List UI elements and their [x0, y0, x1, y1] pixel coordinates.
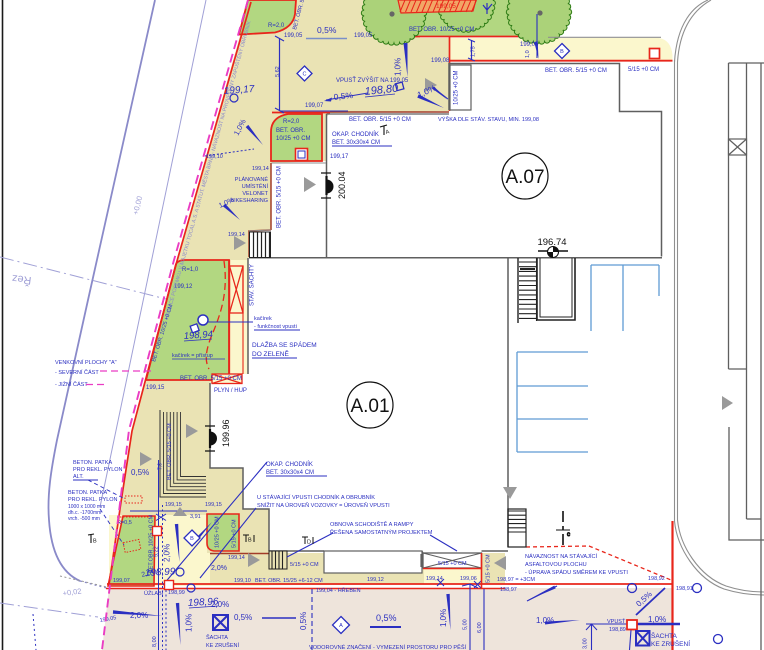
svg-text:- SEVERNÍ ČÁST: - SEVERNÍ ČÁST: [55, 369, 99, 376]
svg-text:PRO REKL. PYLON: PRO REKL. PYLON: [73, 467, 123, 473]
svg-text:kačírek = přístup: kačírek = přístup: [172, 353, 213, 359]
svg-text:5/15 +0 CM: 5/15 +0 CM: [232, 519, 238, 548]
svg-text:D: D: [307, 540, 311, 546]
svg-text:U STÁVAJÍCÍ VPUSTI CHODNÍK A O: U STÁVAJÍCÍ VPUSTI CHODNÍK A OBRUBNÍK: [257, 494, 375, 501]
svg-text:Řez: Řez: [11, 272, 32, 287]
svg-text:199,14: 199,14: [426, 576, 443, 582]
svg-text:198,99: 198,99: [145, 566, 177, 579]
svg-text:199,07: 199,07: [305, 103, 324, 109]
svg-text:BET. OBR. 5/15 +0 CM: BET. OBR. 5/15 +0 CM: [167, 423, 173, 480]
svg-text:R=0,5: R=0,5: [117, 520, 132, 526]
svg-text:BIKESHARING: BIKESHARING: [230, 198, 268, 204]
svg-text:BETON. PATKA: BETON. PATKA: [73, 460, 112, 466]
svg-text:DO ZELENĚ: DO ZELENĚ: [252, 349, 290, 358]
svg-text:198,92: 198,92: [648, 576, 665, 582]
svg-text:1,0%: 1,0%: [536, 616, 554, 625]
svg-text:C: C: [303, 72, 307, 78]
svg-text:200.04: 200.04: [337, 171, 347, 199]
svg-text:BETON. PATKA: BETON. PATKA: [68, 490, 107, 496]
svg-text:ASFALTOVOU PLOCHU: ASFALTOVOU PLOCHU: [525, 562, 587, 568]
svg-text:B: B: [190, 536, 194, 542]
svg-text:1,0%: 1,0%: [185, 614, 194, 632]
svg-text:199,14: 199,14: [228, 232, 245, 238]
svg-text:BET. OBR. 10/25 +0 CM: BET. OBR. 10/25 +0 CM: [409, 27, 474, 33]
svg-text:BET. 30x30x4 CM: BET. 30x30x4 CM: [332, 140, 380, 146]
svg-text:ŠACHTA: ŠACHTA: [206, 634, 228, 641]
svg-text:VENKOVNÍ PLOCHY "A": VENKOVNÍ PLOCHY "A": [55, 359, 117, 366]
svg-text:199,07: 199,07: [113, 578, 130, 584]
svg-text:199,05: 199,05: [436, 3, 456, 10]
svg-text:B: B: [93, 539, 97, 545]
svg-text:BET. OBR. 5/15 +0 CM: BET. OBR. 5/15 +0 CM: [349, 117, 411, 123]
svg-text:R=1,0: R=1,0: [182, 267, 199, 273]
svg-text:B: B: [248, 538, 252, 544]
svg-text:0,5%: 0,5%: [234, 613, 252, 622]
svg-text:199.96: 199.96: [221, 419, 231, 447]
svg-text:- funkčnost vpusti: - funkčnost vpusti: [254, 324, 297, 330]
svg-text:199,12: 199,12: [367, 577, 384, 583]
svg-text:5,62: 5,62: [275, 66, 281, 77]
svg-text:1,0%: 1,0%: [439, 609, 448, 627]
svg-text:198,97: 198,97: [500, 587, 517, 593]
svg-text:OBNOVA SCHODIŠTĚ A RAMPY: OBNOVA SCHODIŠTĚ A RAMPY: [330, 520, 414, 528]
svg-text:5/15 +0 CM: 5/15 +0 CM: [438, 561, 467, 567]
svg-text:ŘEŠENA SAMOSTATNÝM PROJEKTEM: ŘEŠENA SAMOSTATNÝM PROJEKTEM: [330, 528, 433, 536]
svg-text:BET. OBR. 5/15 +0 CM: BET. OBR. 5/15 +0 CM: [180, 376, 242, 382]
svg-text:0,5%: 0,5%: [131, 468, 149, 477]
svg-text:1,0: 1,0: [525, 50, 531, 58]
svg-text:0,5%: 0,5%: [299, 612, 308, 630]
svg-text:VELONET: VELONET: [242, 191, 268, 197]
svg-text:199,15: 199,15: [165, 502, 182, 508]
svg-text:ÚŽLABÍ: ÚŽLABÍ: [144, 589, 164, 597]
svg-text:198,89: 198,89: [609, 627, 626, 633]
svg-text:2,0%: 2,0%: [163, 544, 172, 562]
svg-text:10/25 +0 CM: 10/25 +0 CM: [454, 70, 460, 105]
svg-text:ALT.: ALT.: [73, 474, 84, 480]
svg-text:198,97 = +3CM: 198,97 = +3CM: [497, 577, 535, 583]
svg-text:B: B: [560, 49, 564, 55]
svg-text:199,05: 199,05: [354, 33, 373, 39]
svg-text:0,5%: 0,5%: [376, 613, 397, 623]
svg-text:c: c: [567, 532, 570, 538]
svg-text:3,00: 3,00: [583, 638, 589, 649]
svg-text:199,10: 199,10: [234, 578, 251, 584]
svg-text:PLÁNOVANÉ: PLÁNOVANÉ: [235, 176, 269, 183]
svg-text:199,08: 199,08: [431, 58, 450, 64]
svg-text:BET. 30x30x4 CM: BET. 30x30x4 CM: [266, 470, 314, 476]
svg-text:5/15 +0 CM: 5/15 +0 CM: [628, 67, 659, 73]
svg-text:PRO REKL. PYLON: PRO REKL. PYLON: [68, 497, 118, 503]
svg-text:10/25 +0 CM: 10/25 +0 CM: [215, 516, 221, 548]
svg-text:5,00: 5,00: [463, 619, 469, 630]
svg-text:198,99: 198,99: [168, 590, 185, 596]
svg-text:SNÍŽIT NA ÚROVEŇ VOZOVKY = ÚRO: SNÍŽIT NA ÚROVEŇ VOZOVKY = ÚROVEŇ VPUSTI: [257, 501, 390, 509]
svg-text:6,00: 6,00: [477, 622, 483, 633]
svg-text:KE ZRUŠENÍ: KE ZRUŠENÍ: [206, 642, 239, 649]
svg-text:A: A: [339, 623, 343, 629]
svg-text:A.07: A.07: [505, 167, 544, 188]
svg-text:R=2,0: R=2,0: [268, 23, 285, 29]
svg-text:2,0%: 2,0%: [211, 565, 227, 572]
svg-text:1,75: 1,75: [471, 46, 477, 57]
svg-text:A.01: A.01: [350, 396, 389, 417]
svg-text:R=2,0: R=2,0: [283, 119, 300, 125]
svg-text:199,15: 199,15: [205, 502, 222, 508]
svg-text:0,5%: 0,5%: [333, 90, 354, 102]
svg-text:BET. OBR. 5/15 +0 CM: BET. OBR. 5/15 +0 CM: [277, 166, 283, 228]
svg-text:BET. OBR.: BET. OBR.: [276, 128, 305, 134]
svg-text:1,0%: 1,0%: [394, 58, 403, 76]
svg-text:199,05: 199,05: [284, 33, 303, 39]
svg-text:- JIŽNÍ ČÁST: - JIŽNÍ ČÁST: [55, 380, 88, 388]
svg-text:OKAP. CHODNÍK: OKAP. CHODNÍK: [332, 131, 379, 138]
svg-text:8,00: 8,00: [152, 636, 158, 647]
svg-text:5/15 +0 CM: 5/15 +0 CM: [290, 562, 319, 568]
svg-text:199,06: 199,06: [460, 576, 477, 582]
svg-text:PLYN / HUP: PLYN / HUP: [214, 388, 247, 394]
svg-text:VPUSŤ ZVÝŠIT NA 199,05: VPUSŤ ZVÝŠIT NA 199,05: [336, 76, 409, 84]
svg-text:DLAŽBA SE SPÁDEM: DLAŽBA SE SPÁDEM: [252, 340, 317, 349]
svg-text:10/25 +0 CM: 10/25 +0 CM: [276, 136, 311, 142]
svg-text:BET. OBR. 15/25 +6-12 CM: BET. OBR. 15/25 +6-12 CM: [255, 578, 323, 584]
svg-text:1,0%: 1,0%: [648, 615, 666, 624]
svg-text:5/15 +0 CM: 5/15 +0 CM: [486, 554, 492, 583]
svg-text:5,22: 5,22: [154, 546, 160, 557]
svg-text:ŠACHTA: ŠACHTA: [651, 631, 678, 640]
svg-text:199,04 - HŘEBEN: 199,04 - HŘEBEN: [316, 586, 361, 594]
svg-text:199,17: 199,17: [330, 154, 349, 160]
svg-text:199,14: 199,14: [252, 166, 269, 172]
svg-text:VODOROVNÉ ZNAČENÍ - VYMEZENÍ P: VODOROVNÉ ZNAČENÍ - VYMEZENÍ PROSTORU PR…: [309, 643, 467, 650]
svg-text:vrch. -500 mm: vrch. -500 mm: [68, 516, 100, 522]
svg-text:199,05: 199,05: [520, 42, 539, 48]
svg-text:OKAP. CHODNÍK: OKAP. CHODNÍK: [266, 461, 313, 468]
svg-text:0,5%: 0,5%: [317, 25, 337, 35]
svg-text:- ÚPRAVA SPÁDU SMĚREM KE VPUST: - ÚPRAVA SPÁDU SMĚREM KE VPUSTI: [525, 568, 628, 576]
svg-text:199,15: 199,15: [146, 385, 165, 391]
svg-text:2,0%: 2,0%: [130, 611, 148, 620]
svg-text:198,91: 198,91: [676, 586, 693, 592]
svg-text:199,14: 199,14: [228, 555, 245, 561]
svg-text:VPUSŤ: VPUSŤ: [607, 617, 626, 625]
svg-text:NÁVAZNOST NA STÁVAJÍCÍ: NÁVAZNOST NA STÁVAJÍCÍ: [525, 553, 598, 560]
svg-text:UMÍSTĚNÍ: UMÍSTĚNÍ: [242, 182, 269, 190]
svg-text:196.74: 196.74: [537, 237, 566, 248]
svg-text:7,6: 7,6: [158, 463, 164, 470]
svg-text:KE ZRUŠENÍ: KE ZRUŠENÍ: [651, 639, 690, 648]
svg-text:BET. OBR. 5/15 +0 CM: BET. OBR. 5/15 +0 CM: [545, 68, 607, 74]
svg-text:BET.OBR. 10/25 +0 CM: BET.OBR. 10/25 +0 CM: [149, 514, 155, 573]
svg-text:3,91: 3,91: [190, 514, 201, 520]
svg-text:kačírek: kačírek: [254, 316, 272, 322]
svg-text:STAV. ŠACHTY: STAV. ŠACHTY: [249, 264, 256, 306]
svg-text:VÝŠKA DLE STÁV. STAVU, MIN. 19: VÝŠKA DLE STÁV. STAVU, MIN. 199,08: [438, 116, 539, 123]
